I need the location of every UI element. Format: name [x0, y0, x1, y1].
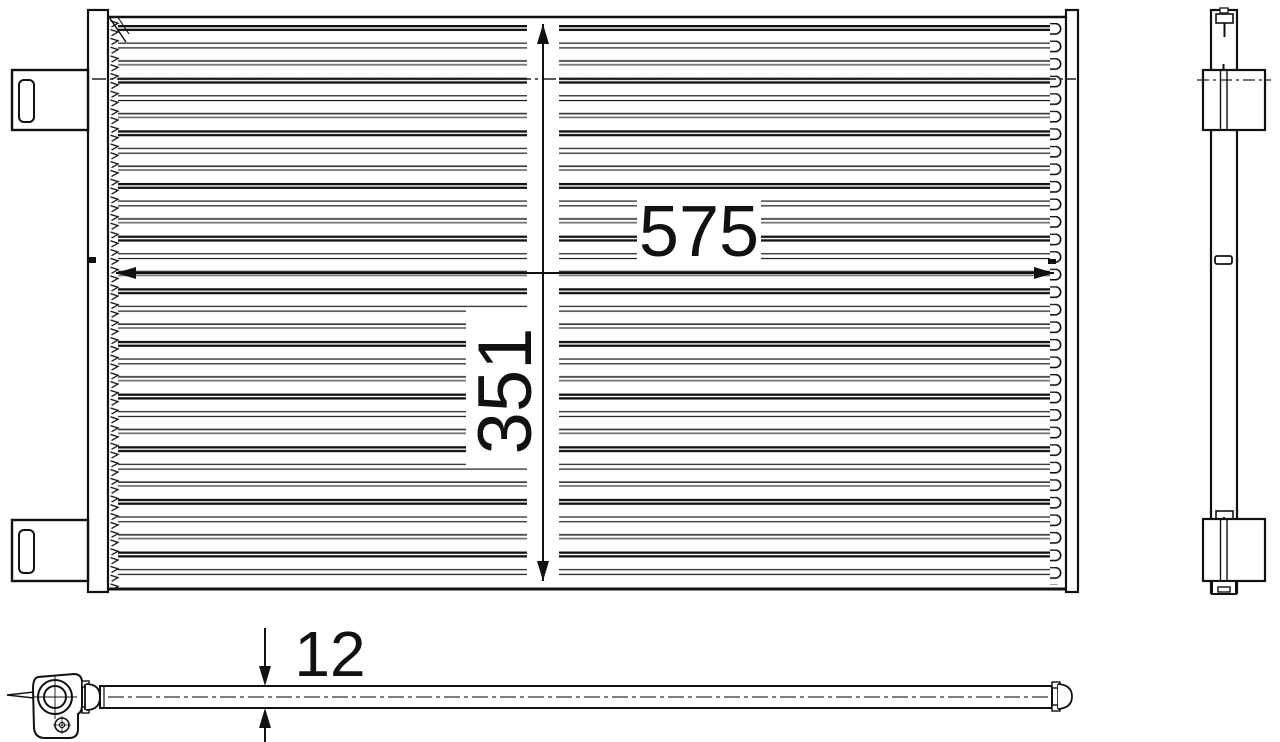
arrowhead-depth-down-icon	[259, 666, 271, 686]
arrowhead-depth-up-icon	[259, 708, 271, 728]
side-bottom-cap-inner	[1218, 587, 1230, 592]
tab-slot-bottom	[19, 530, 34, 573]
tube-end-caps	[1050, 23, 1064, 585]
core-tubes	[118, 25, 1050, 585]
extension-stub-left	[88, 257, 96, 263]
dimension-height-label: 351	[463, 328, 548, 455]
left-tank	[88, 10, 108, 592]
mounting-tab-bottom	[12, 520, 88, 581]
side-bracket-lower	[1203, 519, 1265, 581]
side-view	[1197, 8, 1271, 594]
tab-slot-top	[19, 80, 34, 122]
side-top-fitting	[1216, 14, 1233, 23]
right-tank	[1066, 10, 1078, 592]
mounting-tab-top	[12, 70, 88, 130]
dimension-depth-label: 12	[294, 618, 365, 690]
side-mid-clip	[1215, 256, 1232, 264]
bottom-view: 12	[7, 618, 1072, 742]
side-top-notch	[1220, 8, 1228, 13]
tube-end-cap-right	[1052, 682, 1072, 711]
extension-stub-right	[1048, 259, 1056, 264]
tube-union	[82, 681, 100, 713]
dimension-depth: 12	[259, 618, 366, 742]
condenser-dimension-drawing: 575 351	[0, 0, 1280, 742]
dimension-width-label: 575	[639, 192, 759, 272]
technical-drawing: 575 351	[0, 0, 1280, 742]
side-bracket-upper	[1203, 70, 1265, 130]
